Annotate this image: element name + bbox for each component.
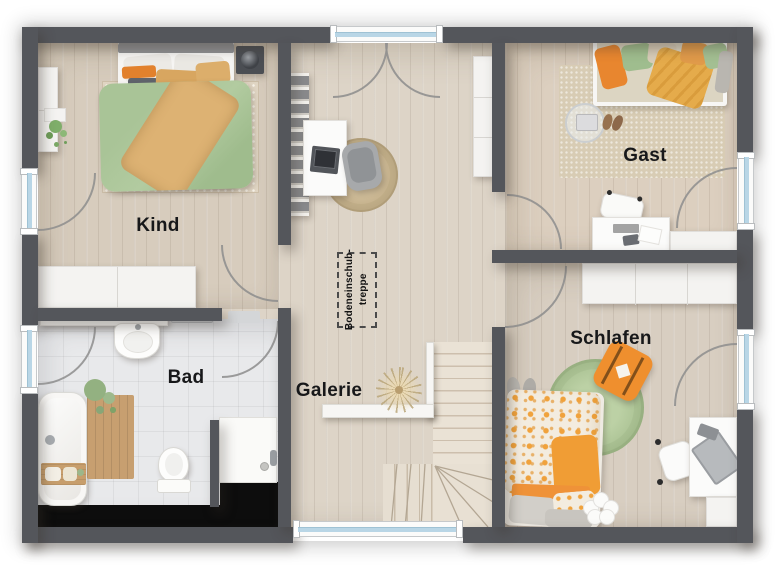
window-stairs-bottom — [293, 521, 463, 537]
wall-exterior-left-middle — [22, 233, 38, 326]
wall-exterior-top-left — [22, 27, 330, 43]
floor-plan: Kind Gast Bad Galerie Schlafen Bodeneins… — [0, 0, 775, 567]
window-galerie-top — [330, 26, 443, 42]
room-label-bad: Bad — [168, 367, 205, 389]
wall-exterior-top-right — [443, 27, 753, 43]
wall-kind-galerie — [278, 43, 291, 245]
wall-shower-stub — [210, 420, 219, 507]
wall-gast-schlafen — [492, 250, 737, 263]
window-schlafen-right — [738, 329, 754, 410]
wall-exterior-bottom-left — [22, 527, 293, 543]
room-label-galerie: Galerie — [296, 380, 363, 402]
wall-stairs-schlafen — [492, 327, 505, 527]
window-kind-left — [21, 168, 37, 235]
wall-bad-galerie — [278, 308, 291, 527]
plan-line-overlay — [0, 0, 775, 567]
wall-exterior-right-lower — [737, 408, 753, 543]
dried-flowers-decor — [376, 367, 422, 413]
window-gast-right — [738, 152, 754, 230]
attic-hatch-annotation: Bodeneinschub- treppe — [337, 252, 377, 328]
window-glass — [744, 157, 749, 225]
room-label-gast: Gast — [623, 145, 666, 167]
room-label-schlafen: Schlafen — [570, 328, 652, 350]
window-glass — [298, 527, 458, 532]
wall-exterior-bottom-right — [463, 527, 753, 543]
wall-exterior-left-upper — [22, 27, 38, 170]
wall-kind-bad — [38, 308, 222, 321]
attic-hatch-label-line1: Bodeneinschub- — [343, 249, 357, 330]
attic-hatch-label-line2: treppe — [357, 249, 371, 330]
wall-exterior-right-middle — [737, 230, 753, 330]
flower-center — [395, 386, 403, 394]
stair-winder-treads — [391, 464, 493, 527]
window-glass — [744, 334, 749, 405]
attic-hatch-label: Bodeneinschub- treppe — [343, 249, 371, 330]
wall-exterior-right-upper — [737, 27, 753, 153]
window-bad-left — [21, 325, 37, 394]
window-glass — [27, 330, 32, 389]
wall-galerie-gast — [492, 43, 505, 192]
window-glass — [335, 32, 438, 37]
wall-exterior-left-lower — [22, 392, 38, 543]
room-label-kind: Kind — [136, 215, 179, 237]
window-glass — [27, 173, 32, 230]
